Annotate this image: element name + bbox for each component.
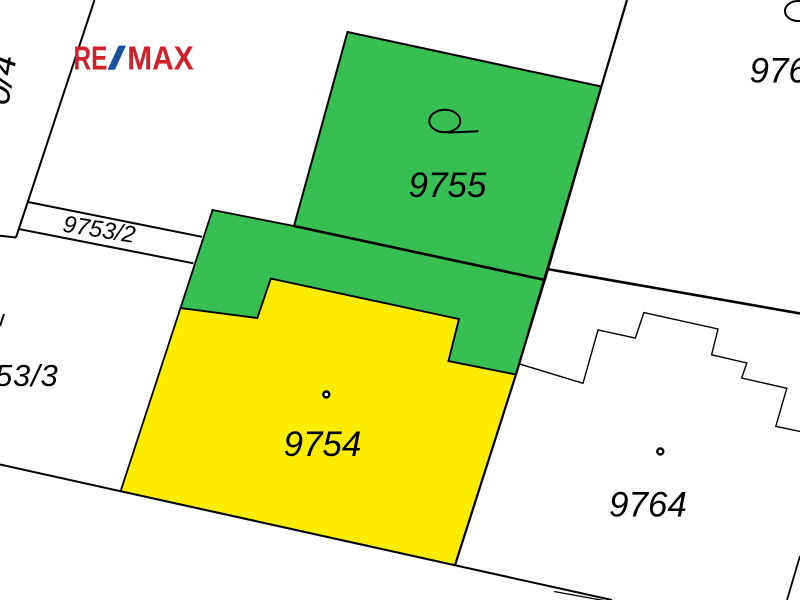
svg-text:MAX: MAX (127, 40, 193, 77)
svg-text:9754: 9754 (284, 425, 362, 464)
svg-text:RE: RE (74, 40, 108, 77)
svg-text:9755: 9755 (409, 166, 487, 205)
svg-text:9764: 9764 (609, 486, 687, 525)
svg-text:9763: 9763 (750, 52, 800, 91)
svg-text:53/3: 53/3 (0, 358, 59, 393)
